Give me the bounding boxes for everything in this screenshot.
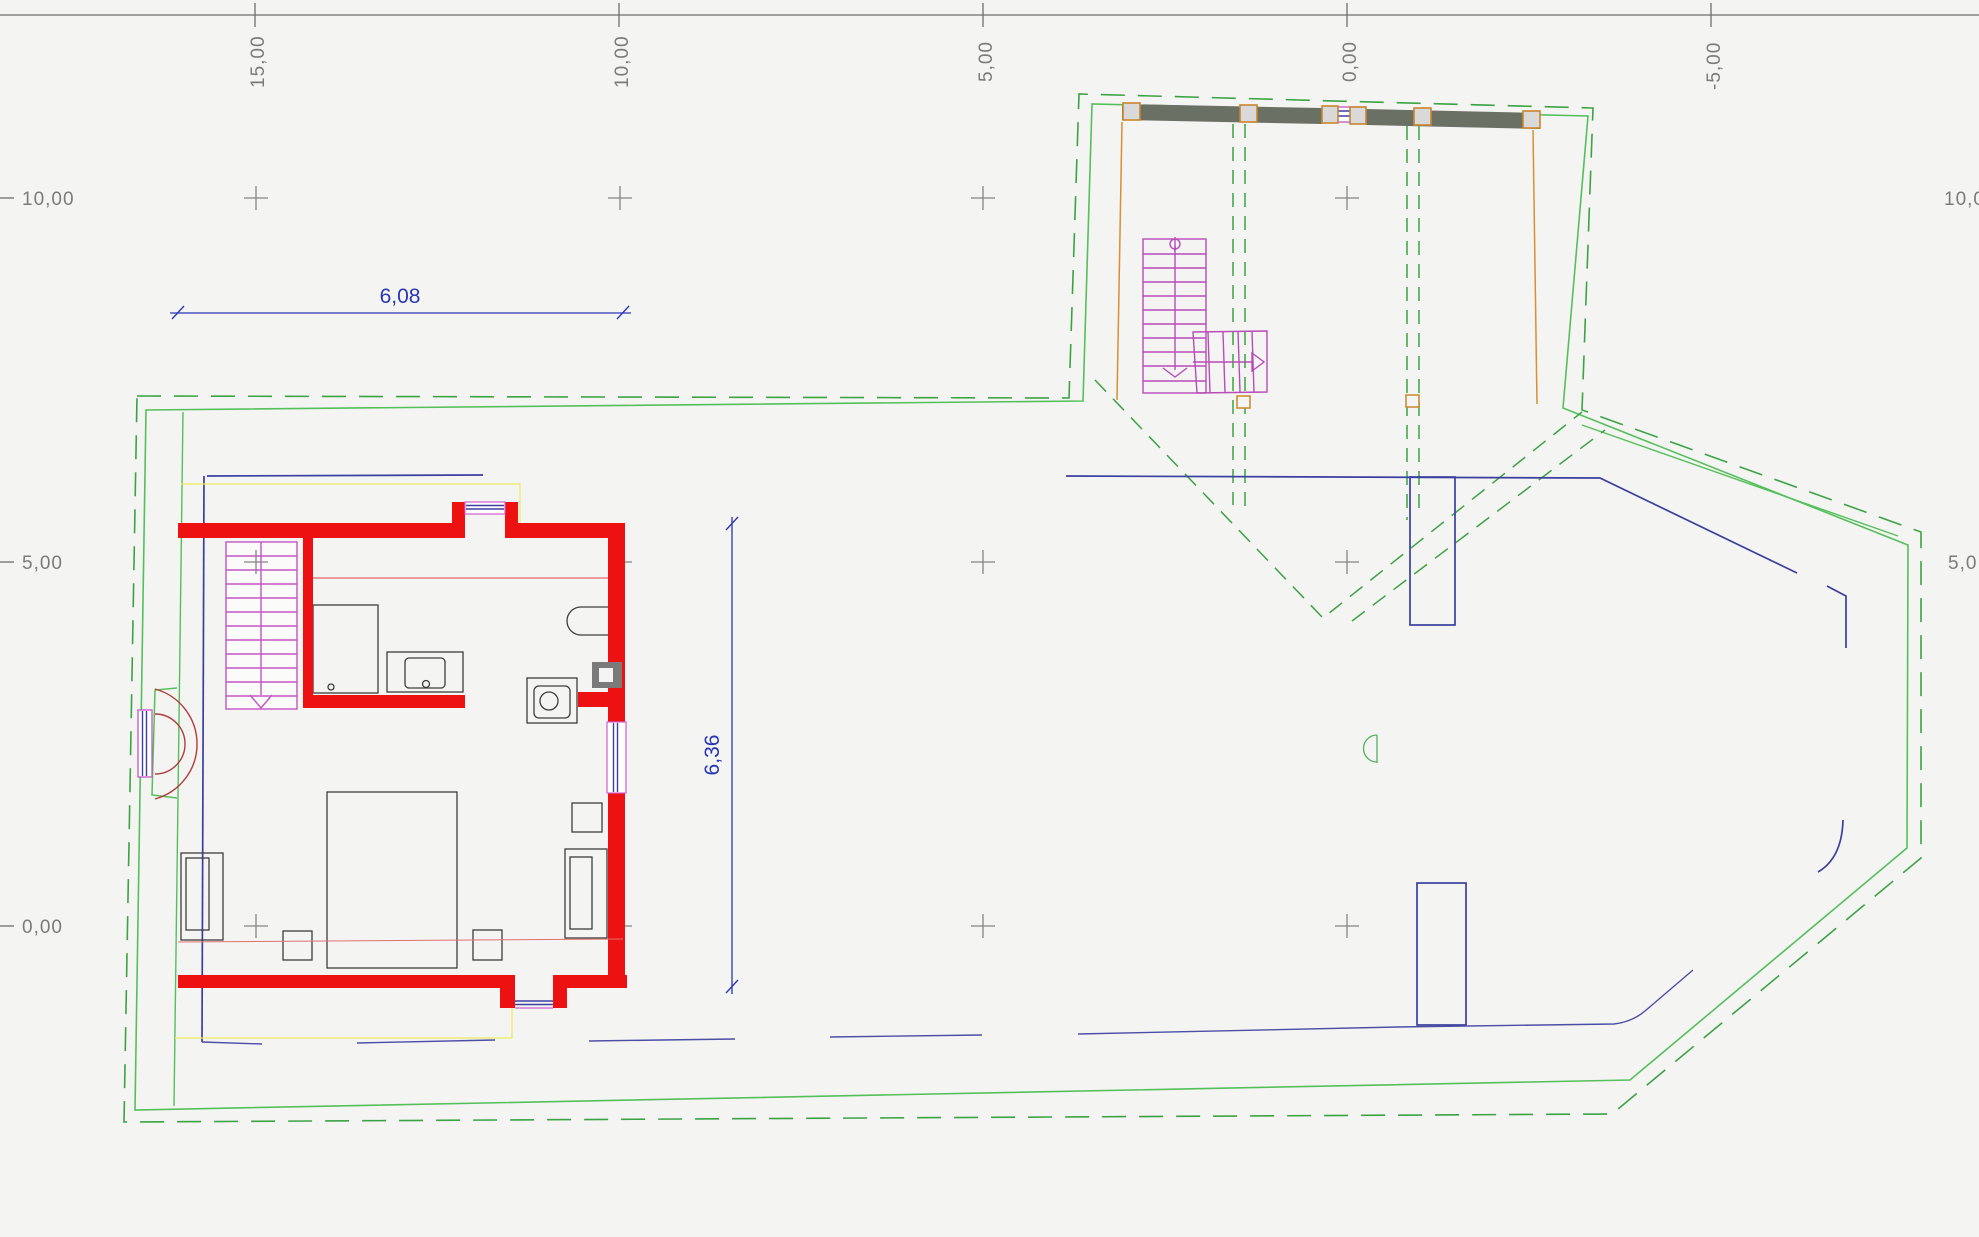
site-boundary-inner-second <box>1582 425 1898 536</box>
garage-staircase <box>1143 237 1267 393</box>
axis-label-top-10: 10,00 <box>612 35 633 88</box>
floor-plan-drawing: 15,00 10,00 5,00 0,00 -5,00 10,00 5,00 0… <box>0 0 1979 1237</box>
axis-label-top-15: 15,00 <box>248 35 269 88</box>
shower <box>527 678 577 723</box>
dimension-horizontal: 6,08 <box>170 285 631 319</box>
axis-label-top-0: 0,00 <box>1340 41 1361 82</box>
wall-interior-horizontal <box>303 695 465 708</box>
garage-stair-upper-flight <box>1143 237 1206 393</box>
floor-plan-canvas: 15,00 10,00 5,00 0,00 -5,00 10,00 5,00 0… <box>0 0 1979 1237</box>
post-footing <box>1406 395 1419 407</box>
site-boundary-inner-solid <box>135 104 1908 1110</box>
axis-label-top-5: 5,00 <box>976 41 997 82</box>
timber-posts-orange <box>1117 122 1537 408</box>
coordinate-ruler-top: 15,00 10,00 5,00 0,00 -5,00 <box>0 3 1979 90</box>
axis-label-left-0: 0,00 <box>22 917 63 938</box>
door-jamb <box>553 975 567 1008</box>
coordinate-labels-right: 10,0 5,0 <box>1944 189 1979 574</box>
dimension-vertical: 6,36 <box>701 517 738 994</box>
dimension-value-horizontal: 6,08 <box>380 285 421 308</box>
window-right <box>607 722 626 793</box>
post-line-left <box>1117 122 1122 400</box>
wall-top-left <box>178 523 465 538</box>
door-swing-arc-outer <box>155 689 197 799</box>
cabinet-right <box>565 803 607 938</box>
nightstand-right <box>473 930 502 960</box>
door-jamb <box>500 975 515 1008</box>
wall-interior-vertical <box>303 538 313 707</box>
garage-post <box>1123 103 1140 120</box>
side-table <box>572 803 602 832</box>
axis-label-left-10: 10,00 <box>22 189 75 210</box>
post-footing <box>1237 396 1250 408</box>
garage-post <box>1240 105 1257 122</box>
hall-door-arc <box>1364 735 1378 763</box>
window-jamb <box>505 502 518 523</box>
axis-label-right-5: 5,0 <box>1948 553 1977 574</box>
axis-label-top-minus5: -5,00 <box>1704 42 1725 90</box>
garage-post <box>1414 108 1431 125</box>
roof-valley-line <box>1095 380 1582 618</box>
roof-valley-line-2 <box>1352 430 1605 621</box>
pillar-outline-upper <box>1410 477 1455 625</box>
garage-post <box>1322 106 1338 123</box>
entrance-window <box>138 710 152 777</box>
pillar-outline-lower <box>1417 883 1466 1025</box>
wall-bottom-left <box>178 975 515 988</box>
wall-bar-left <box>1122 104 1322 124</box>
wall-chimney-stub <box>578 692 625 707</box>
chimney <box>592 662 622 688</box>
wall-right-lower <box>608 793 625 988</box>
bathtub <box>567 607 608 635</box>
garage-bay-dashed-pairs <box>1233 124 1419 520</box>
bed <box>327 792 457 968</box>
room-outline-left <box>202 476 204 1042</box>
coordinate-labels-left: 10,00 5,00 0,00 <box>0 189 75 938</box>
garage-post <box>1523 111 1540 128</box>
washing-machine <box>313 605 378 693</box>
garage-post <box>1350 107 1366 124</box>
bay-outline <box>152 688 177 798</box>
entrance-bay <box>138 688 197 799</box>
terrain-corner-bracket <box>1827 586 1846 648</box>
terrain-upper-line <box>1066 476 1797 573</box>
wall-bar-right <box>1366 109 1540 129</box>
window-jamb <box>452 502 465 523</box>
axis-label-right-10: 10,0 <box>1944 189 1979 210</box>
terrain-outline-navy <box>202 475 1846 1042</box>
room-outline-top <box>207 475 483 476</box>
door-swing-arc-inner <box>155 714 185 774</box>
post-line-right <box>1533 130 1537 404</box>
garage-wall-bar <box>1122 103 1540 129</box>
door-threshold-bottom <box>515 1001 553 1008</box>
apartment-staircase <box>226 542 297 709</box>
garage-stair-lower-flight <box>1193 331 1267 393</box>
washbasin <box>387 652 463 692</box>
window-top <box>465 502 505 514</box>
wall-top-right <box>505 523 625 538</box>
section-line-lower <box>178 939 623 942</box>
axis-label-left-5: 5,00 <box>22 553 63 574</box>
dimension-value-vertical: 6,36 <box>701 735 724 776</box>
terrain-arc-bottom-right <box>1818 820 1843 872</box>
wall-bottom-right <box>567 975 627 988</box>
nightstand-left <box>283 931 312 960</box>
wall-right-mid <box>608 707 625 723</box>
